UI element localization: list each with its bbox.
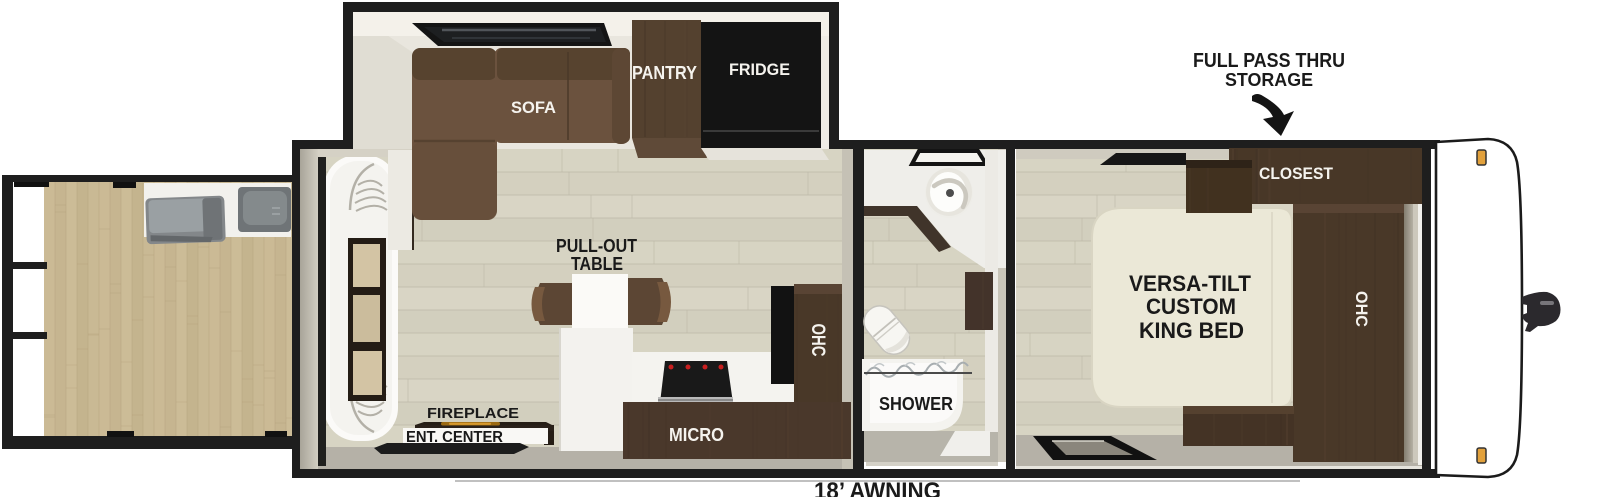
- svg-text:FIREPLACE: FIREPLACE: [427, 405, 519, 422]
- svg-text:KING BED: KING BED: [1139, 318, 1244, 343]
- svg-text:SHOWER: SHOWER: [879, 394, 953, 414]
- svg-text:PANTRY: PANTRY: [632, 63, 697, 83]
- svg-text:STORAGE: STORAGE: [1225, 70, 1313, 90]
- svg-text:SOFA: SOFA: [511, 98, 556, 117]
- svg-text:OHC: OHC: [807, 324, 828, 357]
- svg-text:PULL-OUT: PULL-OUT: [556, 236, 637, 256]
- svg-text:VERSA-TILT: VERSA-TILT: [1129, 271, 1252, 296]
- svg-text:OHC: OHC: [1352, 291, 1371, 327]
- svg-text:FRIDGE: FRIDGE: [729, 60, 790, 79]
- svg-text:18’ AWNING: 18’ AWNING: [814, 478, 941, 497]
- svg-text:TABLE: TABLE: [571, 254, 623, 274]
- svg-text:FULL PASS THRU: FULL PASS THRU: [1193, 50, 1345, 72]
- svg-text:CLOSEST: CLOSEST: [1259, 164, 1334, 183]
- svg-text:MICRO: MICRO: [669, 425, 724, 445]
- svg-text:CUSTOM: CUSTOM: [1146, 294, 1236, 319]
